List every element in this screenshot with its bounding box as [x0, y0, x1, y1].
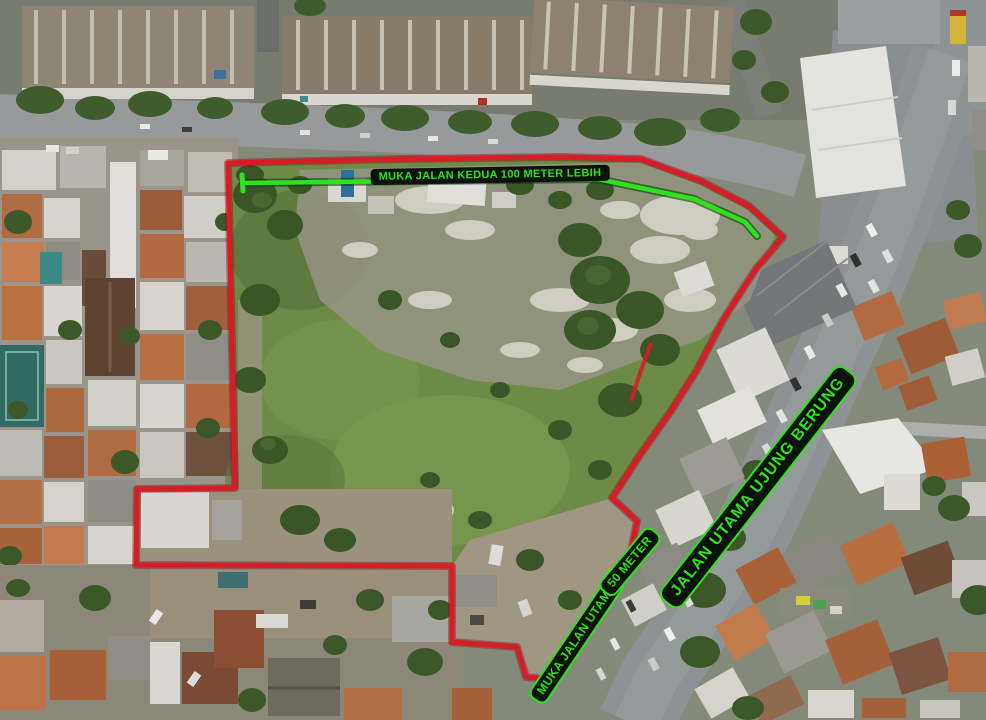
bottomleft-residential [0, 565, 492, 720]
aerial-site-photo: MUKA JALAN KEDUA 100 METER LEBIH JALAN U… [0, 0, 986, 720]
frontage-measure-end-tick [242, 175, 243, 191]
aerial-photo-scene [0, 0, 986, 720]
